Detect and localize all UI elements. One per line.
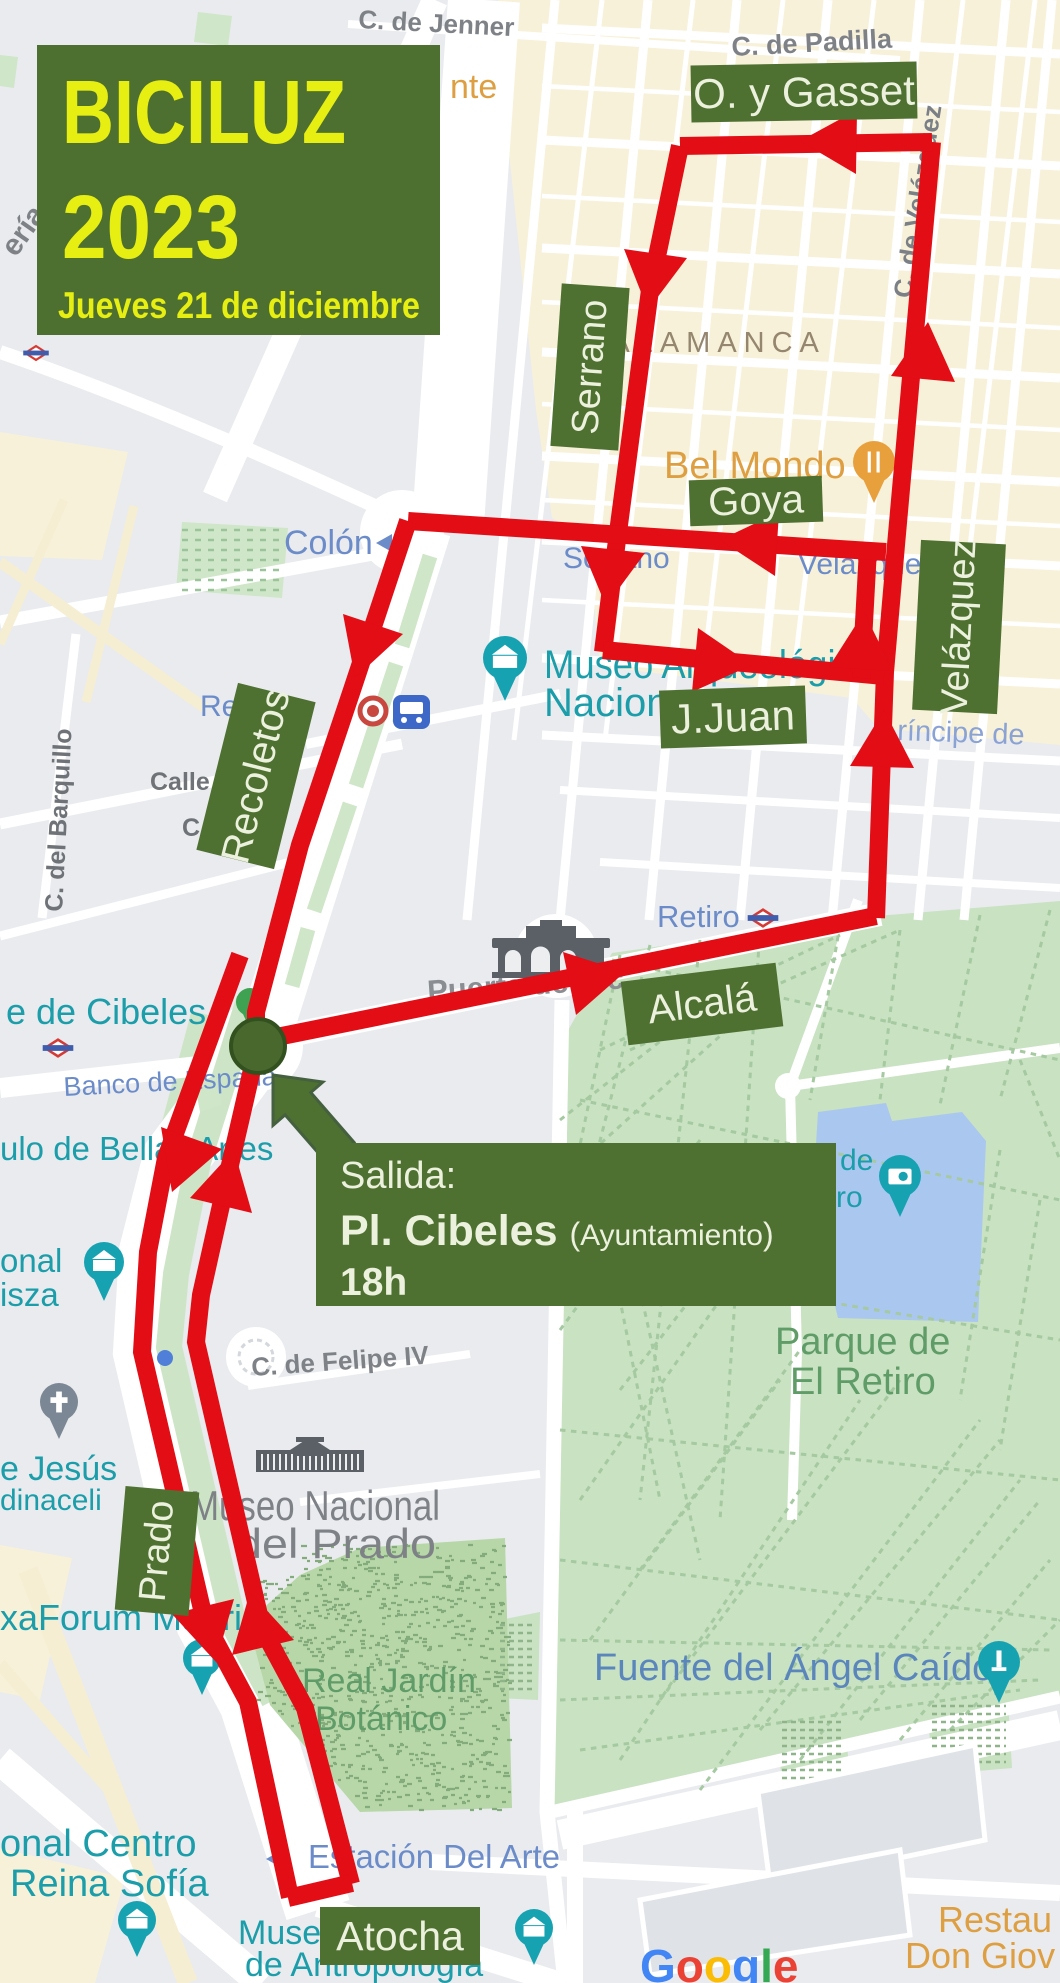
- svg-text:Goya: Goya: [707, 477, 805, 524]
- svg-text:BICILUZ: BICILUZ: [62, 63, 346, 163]
- svg-text:ro: ro: [836, 1181, 863, 1214]
- svg-text:J.Juan: J.Juan: [670, 691, 795, 742]
- svg-text:Atocha: Atocha: [336, 1913, 464, 1959]
- svg-text:Google: Google: [640, 1940, 798, 1983]
- svg-text:Restau: Restau: [938, 1899, 1052, 1940]
- svg-text:Parque de: Parque de: [775, 1321, 950, 1363]
- svg-text:dinaceli: dinaceli: [0, 1484, 102, 1517]
- svg-text:Real Jardín: Real Jardín: [302, 1662, 476, 1700]
- svg-text:isza: isza: [0, 1276, 59, 1313]
- svg-text:de: de: [840, 1144, 873, 1177]
- svg-text:Fuente del Ángel Caído: Fuente del Ángel Caído: [594, 1646, 993, 1689]
- svg-text:Colón: Colón: [284, 524, 373, 562]
- svg-text:2023: 2023: [62, 178, 240, 278]
- svg-text:Botánico: Botánico: [315, 1700, 447, 1738]
- svg-text:Retiro: Retiro: [657, 899, 740, 934]
- svg-text:onal Centro: onal Centro: [0, 1823, 196, 1865]
- svg-text:Jueves 21 de diciembre: Jueves 21 de diciembre: [58, 285, 420, 326]
- svg-text:ríncipe de: ríncipe de: [897, 715, 1025, 751]
- svg-text:e de Cibeles: e de Cibeles: [6, 991, 206, 1032]
- svg-text:nte: nte: [450, 68, 497, 106]
- svg-text:Reina Sofía: Reina Sofía: [10, 1863, 209, 1905]
- svg-text:Prado: Prado: [132, 1499, 183, 1604]
- svg-text:del Prado: del Prado: [236, 1520, 436, 1567]
- svg-text:18h: 18h: [340, 1261, 407, 1304]
- svg-text:Don Giov: Don Giov: [905, 1935, 1055, 1976]
- svg-text:O. y Gasset: O. y Gasset: [693, 67, 916, 118]
- svg-text:e Jesús: e Jesús: [0, 1450, 117, 1488]
- svg-text:Salida:: Salida:: [340, 1155, 456, 1197]
- svg-text:onal: onal: [0, 1242, 62, 1279]
- svg-text:El Retiro: El Retiro: [790, 1361, 936, 1403]
